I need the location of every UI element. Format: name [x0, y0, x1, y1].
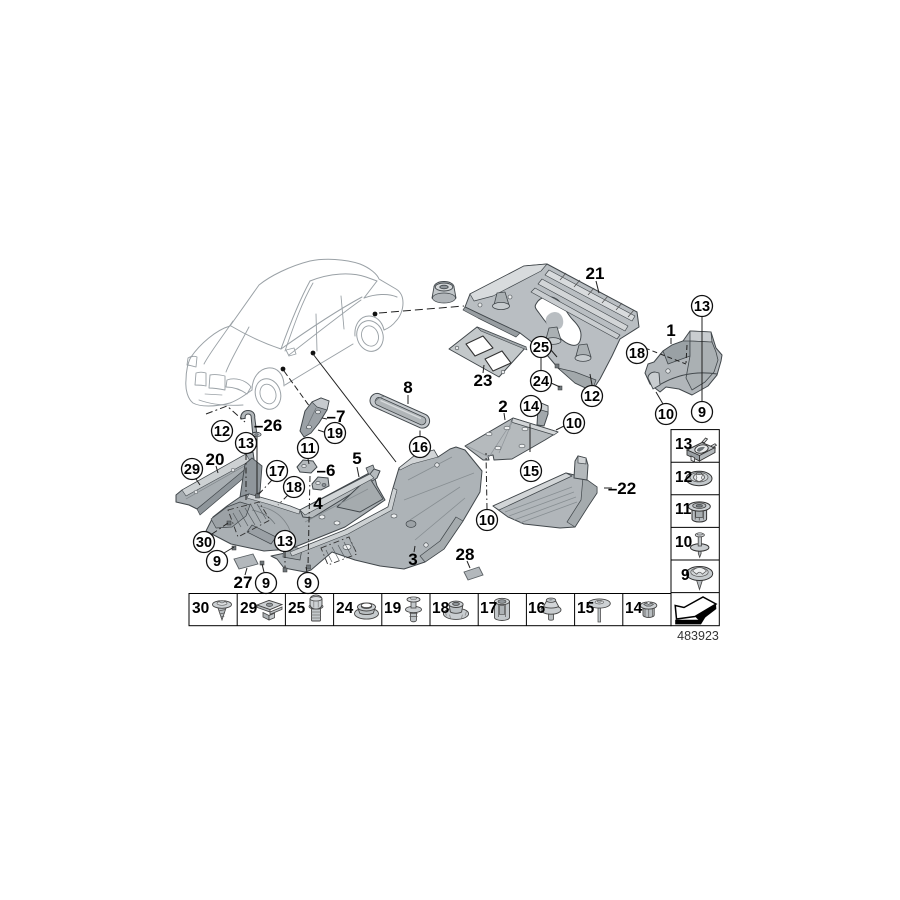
svg-text:10: 10 [658, 407, 674, 423]
svg-text:10: 10 [479, 513, 495, 529]
svg-text:19: 19 [384, 600, 402, 617]
svg-text:2: 2 [498, 397, 507, 416]
svg-text:27: 27 [234, 573, 253, 592]
svg-text:10: 10 [675, 534, 692, 551]
svg-text:8: 8 [403, 378, 412, 397]
svg-text:24: 24 [533, 374, 549, 390]
svg-text:29: 29 [240, 600, 258, 617]
svg-text:15: 15 [523, 464, 539, 480]
svg-text:28: 28 [456, 545, 475, 564]
svg-text:4: 4 [313, 494, 323, 513]
svg-text:9: 9 [698, 405, 706, 421]
svg-text:19: 19 [327, 426, 343, 442]
svg-text:9: 9 [681, 567, 690, 584]
svg-text:13: 13 [675, 436, 693, 453]
svg-text:13: 13 [277, 534, 293, 550]
svg-text:15: 15 [577, 600, 595, 617]
svg-text:12: 12 [214, 424, 230, 440]
svg-text:18: 18 [286, 480, 302, 496]
svg-text:–22: –22 [608, 479, 636, 498]
svg-text:30: 30 [196, 535, 212, 551]
svg-text:13: 13 [694, 299, 710, 315]
svg-text:–6: –6 [317, 461, 336, 480]
svg-text:11: 11 [675, 501, 692, 518]
svg-text:12: 12 [584, 389, 600, 405]
svg-text:483923: 483923 [677, 629, 719, 643]
svg-text:12: 12 [675, 469, 692, 486]
svg-text:24: 24 [336, 600, 354, 617]
svg-text:–26: –26 [254, 416, 282, 435]
svg-text:5: 5 [352, 449, 361, 468]
svg-text:9: 9 [213, 554, 221, 570]
svg-text:1: 1 [666, 321, 675, 340]
svg-text:3: 3 [408, 550, 417, 569]
svg-text:16: 16 [412, 440, 428, 456]
svg-text:25: 25 [533, 340, 549, 356]
svg-text:17: 17 [269, 464, 285, 480]
svg-text:23: 23 [474, 371, 493, 390]
svg-text:18: 18 [432, 600, 450, 617]
svg-text:21: 21 [586, 264, 605, 283]
svg-text:25: 25 [288, 600, 306, 617]
svg-text:16: 16 [528, 600, 546, 617]
svg-text:18: 18 [629, 346, 645, 362]
svg-text:9: 9 [304, 576, 312, 592]
svg-text:11: 11 [300, 441, 315, 457]
svg-text:–7: –7 [327, 407, 346, 426]
svg-text:17: 17 [480, 600, 497, 617]
svg-text:20: 20 [206, 450, 225, 469]
svg-text:30: 30 [192, 600, 209, 617]
svg-text:14: 14 [523, 399, 539, 415]
svg-text:13: 13 [238, 436, 254, 452]
svg-text:9: 9 [262, 576, 270, 592]
svg-text:10: 10 [566, 416, 582, 432]
svg-text:29: 29 [184, 462, 200, 478]
svg-text:14: 14 [625, 600, 643, 617]
